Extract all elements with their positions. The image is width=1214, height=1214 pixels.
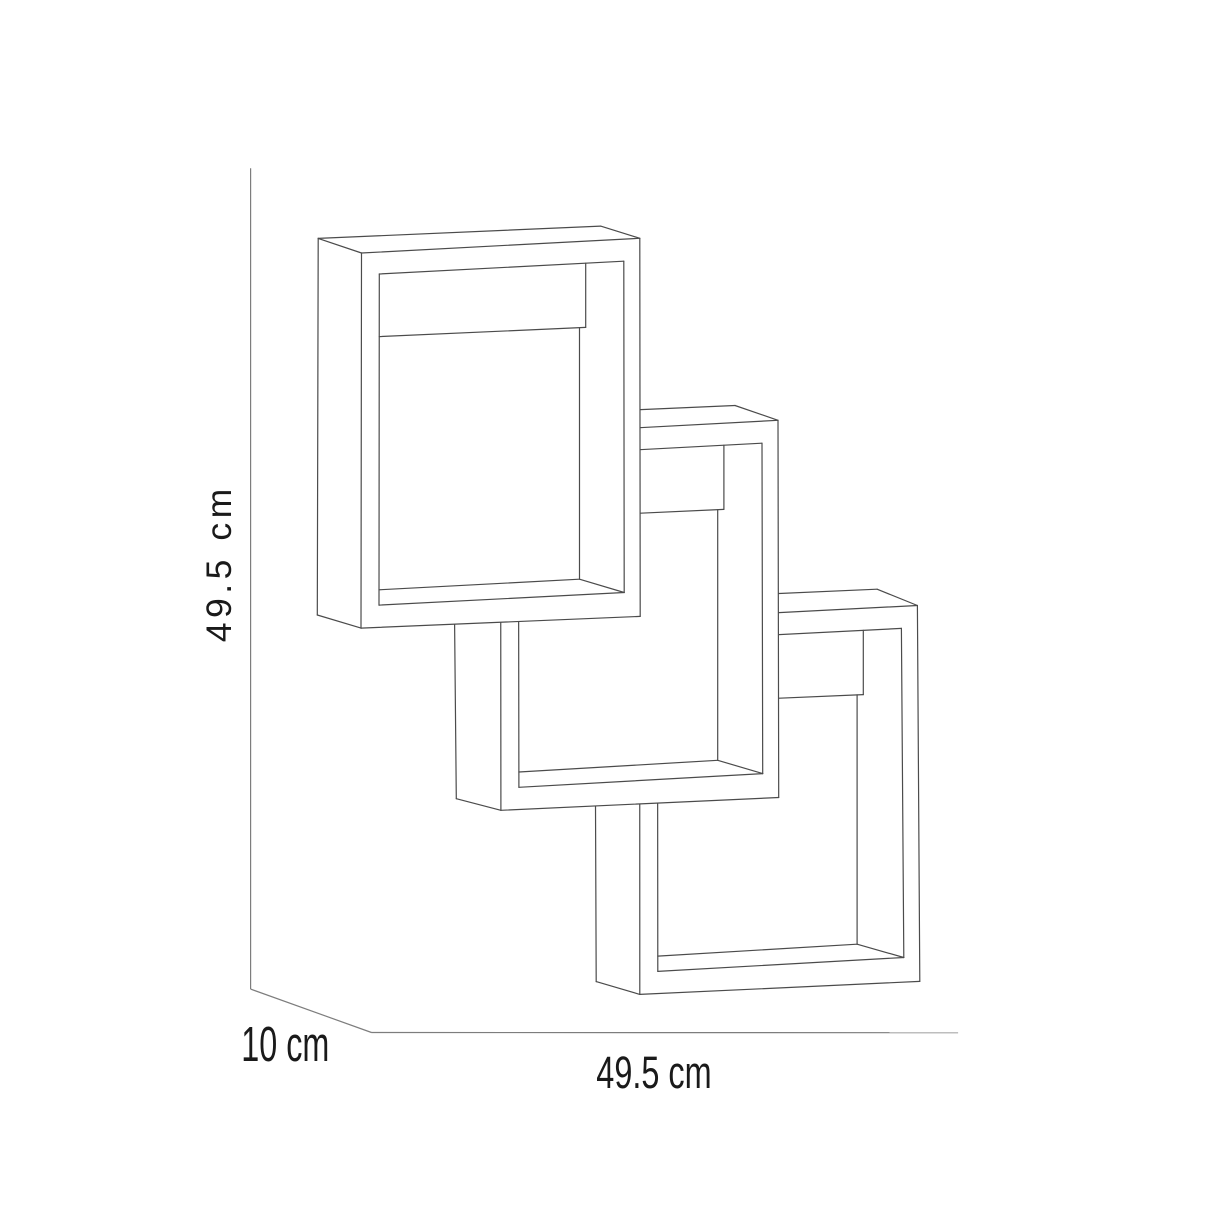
svg-text:10 cm: 10 cm <box>241 1016 329 1071</box>
svg-text:49.5 cm: 49.5 cm <box>199 484 239 642</box>
svg-text:49.5 cm: 49.5 cm <box>596 1048 711 1099</box>
